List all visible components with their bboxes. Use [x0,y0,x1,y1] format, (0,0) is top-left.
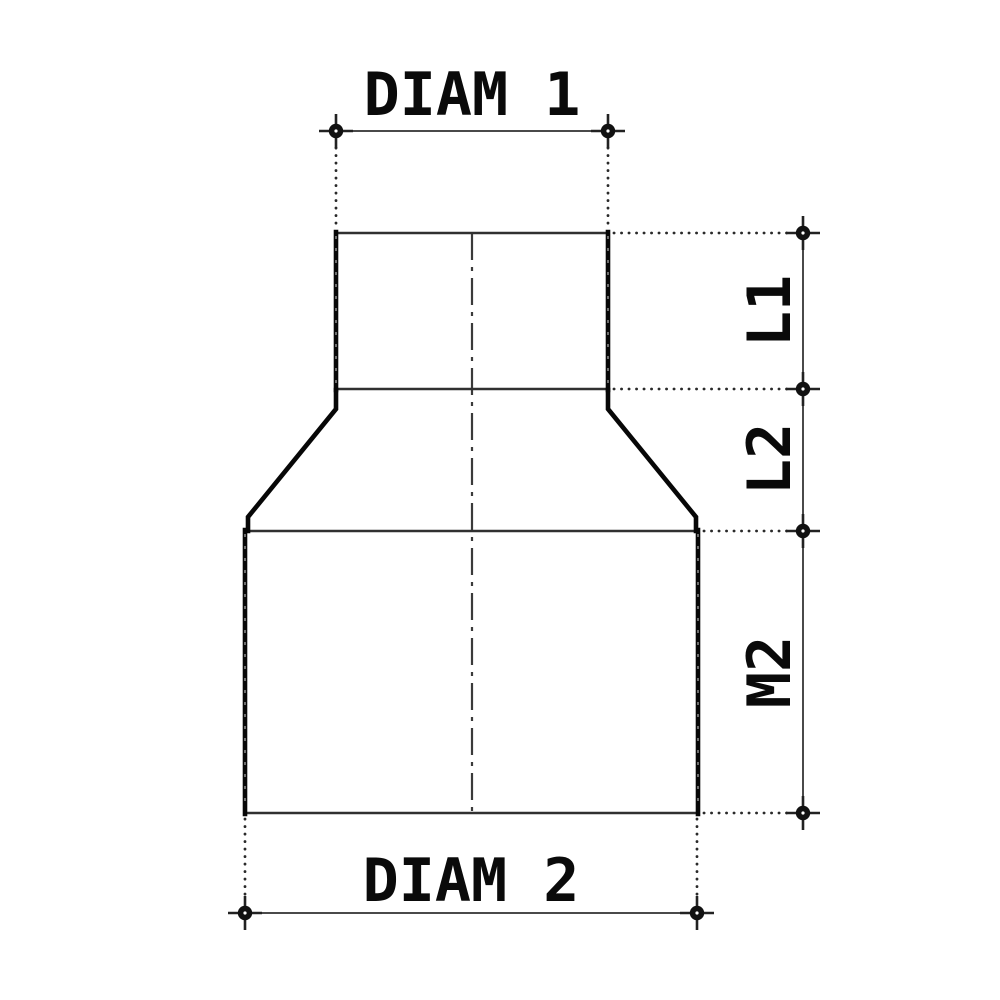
extension-lines [245,148,789,897]
dim-endpoint-marker-m2-bottom [786,796,820,830]
dim-endpoint-marker-diam2-right [680,896,714,930]
cone-right-wall [608,390,696,531]
cone-left-wall [248,390,336,531]
drawing-canvas: DIAM 1 DIAM 2 L1 L2 M2 [0,0,1000,1000]
reducer-technical-drawing: DIAM 1 DIAM 2 L1 L2 M2 [0,0,1000,1000]
dimension-endpoint-markers [228,114,820,930]
dim-endpoint-marker-l2-bottom [786,514,820,548]
l2-label: L2 [735,423,805,495]
m2-label: M2 [735,636,805,708]
l1-label: L1 [735,275,805,347]
dim-endpoint-marker-diam2-left [228,896,262,930]
diam1-label: DIAM 1 [364,60,581,130]
diam2-label: DIAM 2 [363,846,580,916]
dimension-lines [245,131,803,913]
dim-endpoint-marker-diam1-left [319,114,353,148]
dim-endpoint-marker-l1-bottom [786,372,820,406]
dim-endpoint-marker-diam1-right [591,114,625,148]
dim-endpoint-marker-l1-top [786,216,820,250]
